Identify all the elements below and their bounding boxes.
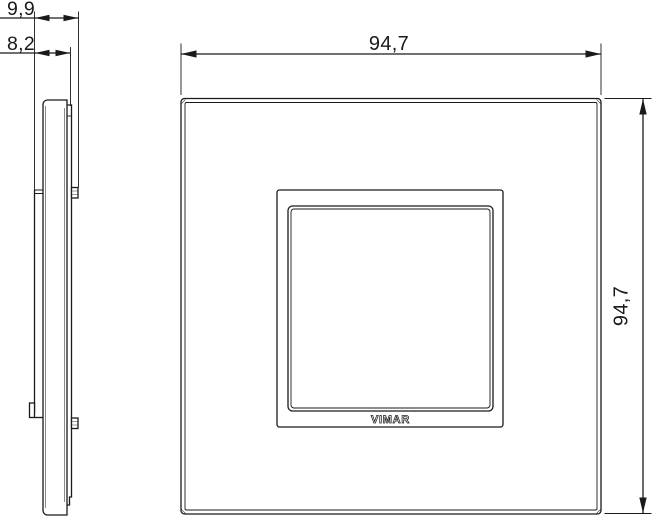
technical-drawing-canvas: 9,9 8,2 — [0, 0, 652, 520]
module-side-tab — [30, 403, 35, 418]
dimension-arrow-left — [35, 15, 50, 22]
dimension-arrow-right — [586, 50, 602, 57]
front-view: VIMAR 94,7 94,7 — [181, 33, 652, 514]
dimension-label-height: 94,7 — [611, 286, 633, 326]
dimension-label-depth-total: 9,9 — [7, 0, 35, 20]
dimension-arrow-left — [181, 50, 197, 57]
dimension-label-width: 94,7 — [369, 33, 409, 55]
dimension-depth-plate: 8,2 — [0, 33, 71, 56]
side-profile-frame — [67, 105, 72, 505]
dimension-depth-total: 9,9 — [0, 0, 79, 21]
dimension-label-depth-plate: 8,2 — [7, 33, 35, 55]
clip-top — [72, 188, 79, 199]
dimension-arrow-top — [639, 99, 646, 115]
side-profile-clips — [72, 188, 79, 429]
side-view: 9,9 8,2 — [0, 0, 79, 515]
side-profile-module — [30, 190, 44, 418]
brand-logo: VIMAR — [371, 414, 410, 426]
dimension-width: 94,7 — [181, 33, 601, 95]
module-outer-edge — [288, 206, 493, 411]
dimension-arrow-right — [64, 15, 79, 22]
module-top-step — [35, 190, 44, 194]
dimension-arrow-right — [56, 50, 71, 57]
dimension-arrow-bottom — [639, 498, 646, 514]
dimension-height: 94,7 — [605, 99, 652, 514]
module — [288, 206, 493, 411]
side-profile-plate — [43, 100, 67, 515]
technical-drawing: 9,9 8,2 — [0, 0, 652, 520]
clip-bottom — [72, 418, 79, 429]
dimension-arrow-left — [35, 50, 50, 57]
